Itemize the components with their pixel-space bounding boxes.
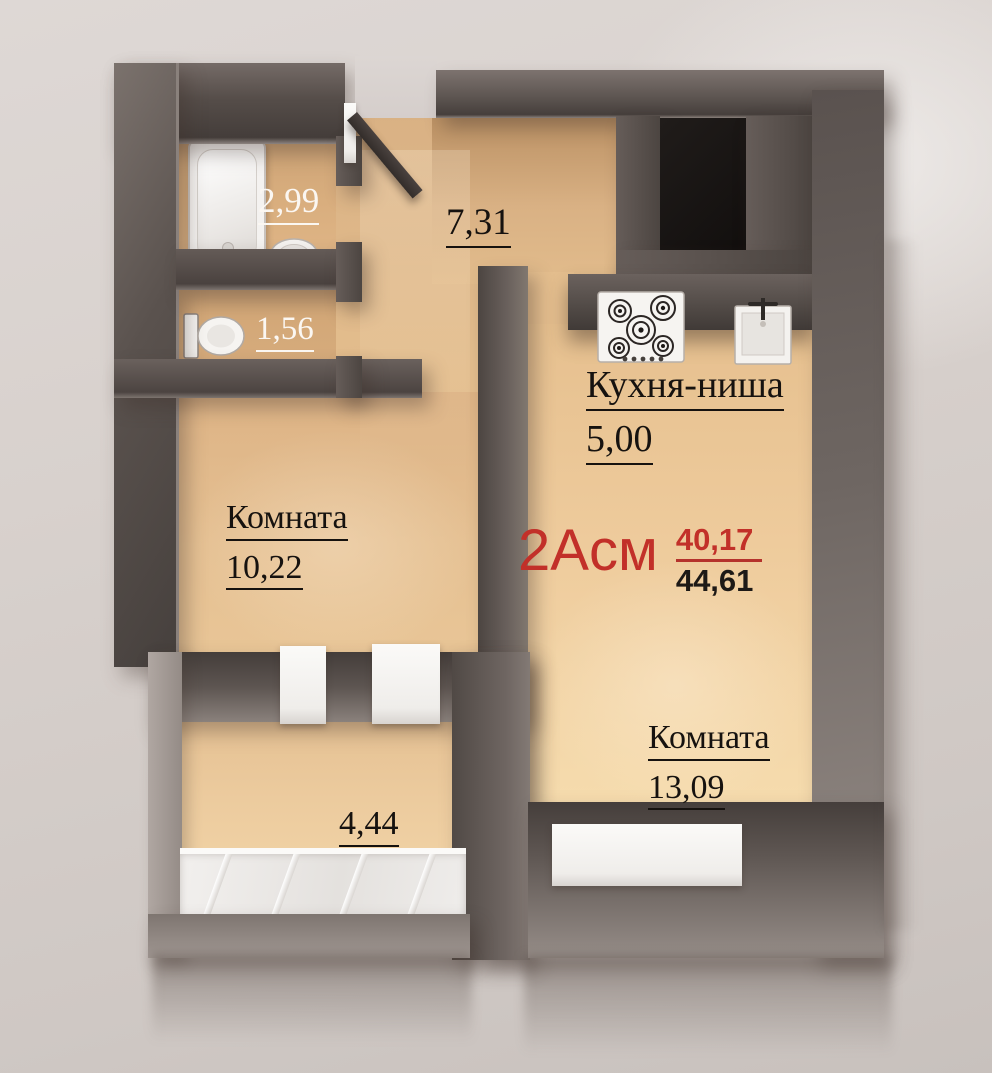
kitchen-area-value: 5,00	[586, 420, 653, 465]
living-area-value: 40,17	[676, 524, 762, 555]
total-area-value: 44,61	[676, 565, 762, 596]
wall-segment	[148, 914, 470, 958]
room-left-area-value: 10,22	[226, 550, 303, 591]
bathroom-area-value: 2,99	[258, 183, 319, 225]
toilet	[182, 310, 250, 362]
wall-segment	[336, 356, 362, 398]
kitchen-name: Кухня-ниша	[586, 366, 784, 411]
room-left-label: Комната 10,22	[226, 500, 348, 590]
apartment-summary: 2Асм 40,17 44,61	[518, 522, 762, 596]
wall-segment	[176, 249, 346, 290]
entrance-gap	[355, 56, 437, 118]
room-right-area-value: 13,09	[648, 770, 725, 811]
balcony-window-opening	[280, 646, 326, 724]
room-right-name: Комната	[648, 720, 770, 761]
floor-plan: 2,99 1,56 7,31 Кухня-ниша 5,00 Комната 1…	[0, 0, 992, 1073]
kitchen-label: Кухня-ниша 5,00	[586, 366, 784, 465]
toilet-area-value: 1,56	[256, 312, 314, 352]
room-left-name: Комната	[226, 500, 348, 541]
hallway-area-value: 7,31	[446, 204, 511, 248]
window-opening	[552, 824, 742, 886]
room-right-label: Комната 13,09	[648, 720, 770, 810]
wall-segment	[148, 652, 182, 958]
apartment-type-label: 2Асм	[518, 522, 658, 580]
loggia-area-value: 4,44	[339, 806, 399, 847]
wall-segment	[336, 242, 362, 302]
balcony-door-opening	[372, 644, 440, 724]
loggia-area-label: 4,44	[339, 806, 399, 847]
bathroom-area-label: 2,99	[258, 183, 319, 225]
entrance-door-jamb	[344, 103, 356, 163]
hallway-top-floor	[432, 112, 622, 284]
wall-segment	[114, 359, 422, 398]
area-fraction: 40,17 44,61	[676, 524, 762, 596]
toilet-area-label: 1,56	[256, 312, 314, 352]
hallway-area-label: 7,31	[446, 204, 511, 248]
ventilation-shaft	[660, 118, 746, 252]
fraction-bar	[676, 559, 762, 562]
kitchen-sink	[734, 296, 792, 366]
stove-5-burner	[597, 291, 685, 367]
